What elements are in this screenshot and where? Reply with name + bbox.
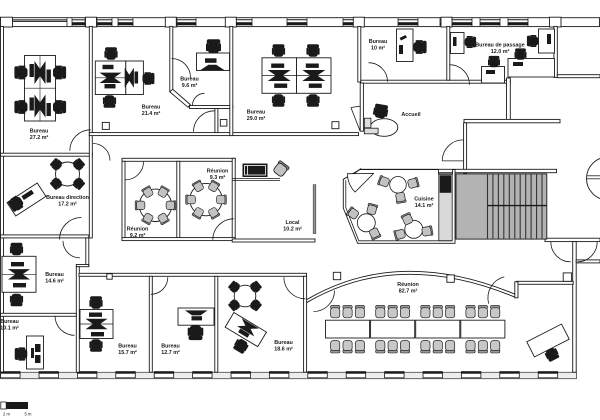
svg-text:14.6 m²: 14.6 m² <box>45 278 64 284</box>
svg-text:18.6 m²: 18.6 m² <box>274 346 293 352</box>
svg-text:27.2 m²: 27.2 m² <box>30 135 49 141</box>
svg-text:10 m²: 10 m² <box>371 45 385 51</box>
svg-text:17.2 m²: 17.2 m² <box>58 201 77 207</box>
svg-text:9.6 m²: 9.6 m² <box>182 83 198 89</box>
svg-text:Bureau: Bureau <box>161 344 180 350</box>
svg-text:Bureau de passage: Bureau de passage <box>475 43 524 49</box>
svg-text:Bureau: Bureau <box>30 129 49 135</box>
svg-text:14.1 m²: 14.1 m² <box>415 203 434 209</box>
svg-text:Bureau: Bureau <box>369 39 388 45</box>
svg-text:5 m: 5 m <box>25 412 32 417</box>
svg-text:Bureau direction: Bureau direction <box>46 195 89 201</box>
svg-text:12.0 m²: 12.0 m² <box>491 49 510 55</box>
svg-text:Accueil: Accueil <box>401 112 421 118</box>
svg-text:9.3 m²: 9.3 m² <box>210 175 226 181</box>
svg-text:12.7 m²: 12.7 m² <box>161 350 180 356</box>
svg-text:21.4 m²: 21.4 m² <box>142 111 161 117</box>
svg-text:Bureau: Bureau <box>0 319 19 325</box>
svg-text:Bureau: Bureau <box>142 105 161 111</box>
svg-text:Réunion: Réunion <box>127 227 149 233</box>
svg-text:10.1 m²: 10.1 m² <box>0 325 19 331</box>
svg-text:Bureau: Bureau <box>118 344 137 350</box>
svg-text:82.7 m²: 82.7 m² <box>399 288 418 294</box>
svg-text:Cuisine: Cuisine <box>414 197 433 203</box>
svg-text:Bureau: Bureau <box>247 110 266 116</box>
svg-text:15.7 m²: 15.7 m² <box>118 350 137 356</box>
svg-text:Bureau: Bureau <box>45 272 64 278</box>
svg-text:Local: Local <box>285 220 300 226</box>
svg-text:10.2 m²: 10.2 m² <box>283 226 302 232</box>
svg-text:29.0 m²: 29.0 m² <box>247 116 266 122</box>
svg-text:Bureau: Bureau <box>180 77 199 83</box>
svg-text:9.2 m²: 9.2 m² <box>130 233 146 239</box>
svg-text:Bureau: Bureau <box>274 340 293 346</box>
svg-text:Réunion: Réunion <box>207 169 229 175</box>
svg-text:2 m: 2 m <box>3 412 10 417</box>
svg-text:Réunion: Réunion <box>397 282 419 288</box>
